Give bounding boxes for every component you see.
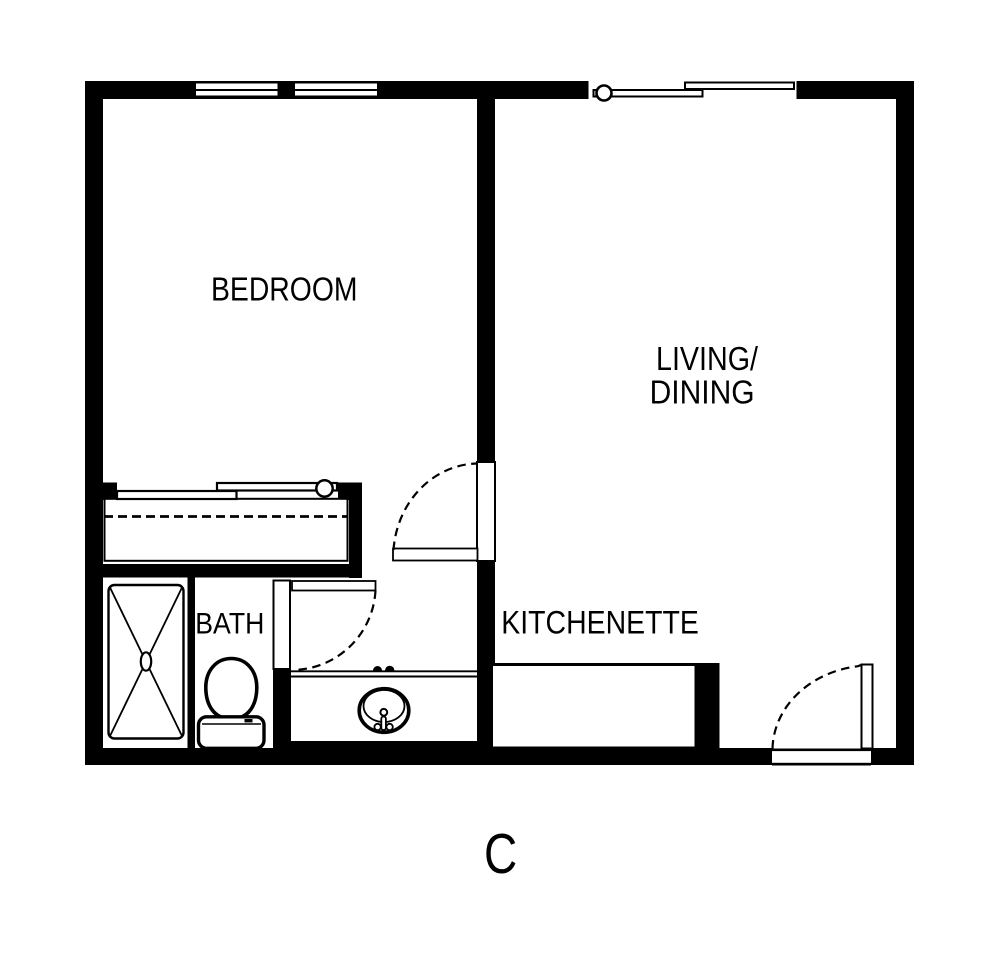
svg-text:KITCHENETTE: KITCHENETTE bbox=[501, 604, 699, 640]
svg-text:BEDROOM: BEDROOM bbox=[211, 270, 358, 307]
svg-text:DINING: DINING bbox=[650, 373, 755, 410]
svg-text:C: C bbox=[484, 822, 517, 886]
svg-text:LIVING/: LIVING/ bbox=[656, 340, 759, 377]
svg-text:BATH: BATH bbox=[195, 607, 264, 640]
